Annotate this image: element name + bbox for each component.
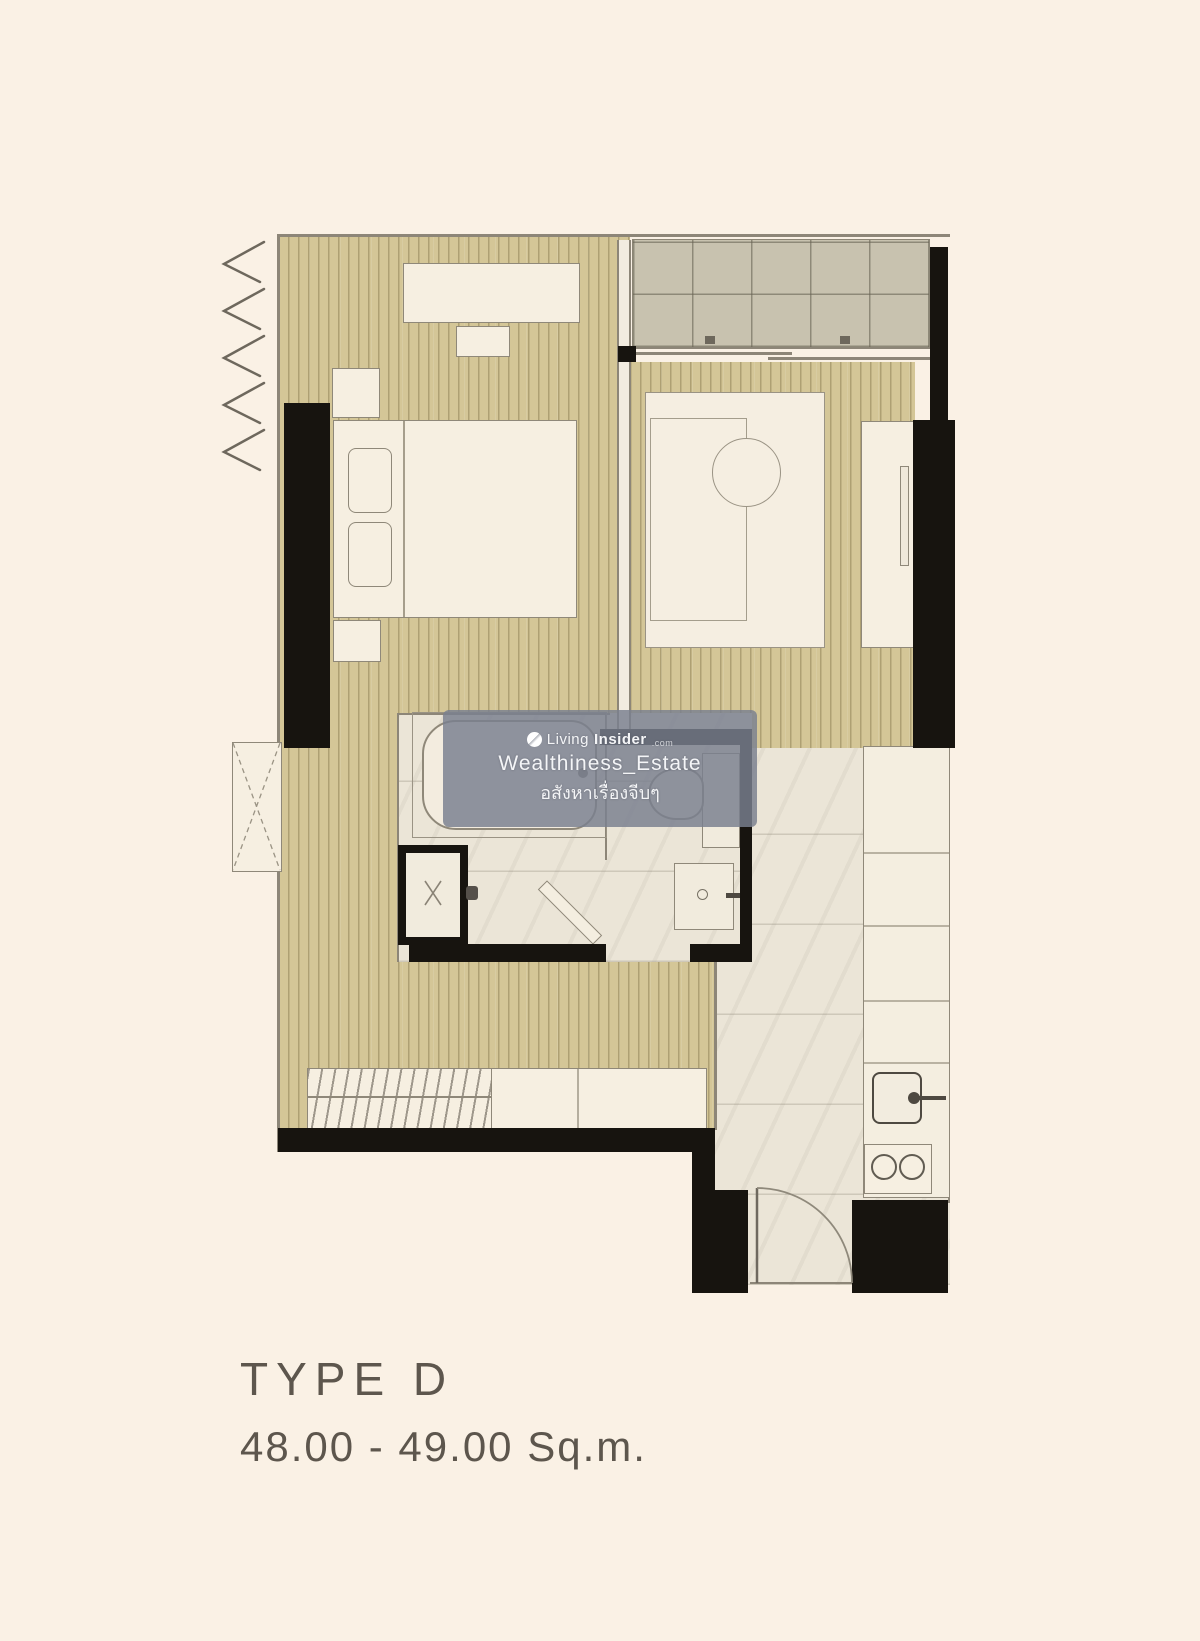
balcony-roller-icon [705,336,715,344]
bed-bench [333,620,381,662]
counter-divider [864,1062,949,1064]
ac-unit-cross-icon [233,743,280,870]
bed-sheet-line [403,421,405,617]
low-shelf-divider [577,1069,579,1129]
stove [864,1144,932,1194]
wall-bathroom-bottom-left [409,944,606,962]
caption: TYPE D 48.00 - 49.00 Sq.m. [240,1352,647,1471]
ac-unit-box [232,742,282,872]
pillow [348,448,392,513]
floor-plan-page: Living Insider .com Wealthiness_Estate อ… [0,0,1200,1641]
stove-burner-icon [899,1154,925,1180]
watermark-brand: Living Insider .com [527,731,673,748]
window-louver-icon [212,240,292,490]
desk [403,263,580,323]
balcony-sill-line [632,347,930,349]
wall-entry-right-stub [852,1200,948,1293]
top-wall-line [277,234,950,237]
watermark-account: Wealthiness_Estate [498,752,701,776]
counter-divider [864,925,949,927]
partition-wall [617,240,631,745]
living-insider-logo-icon [527,732,542,747]
coffee-table [712,438,781,507]
pillow [348,522,392,587]
shower-stall [398,845,468,945]
wall-bathroom-bottom-right [690,944,752,962]
tv-console-hatched [307,1068,493,1130]
balcony-floor [632,239,930,348]
low-shelf [491,1068,707,1130]
shower-valve-icon [466,886,478,900]
wall-living-bottom [278,1128,715,1152]
nightstand [332,368,380,418]
entry-door-swing [740,1180,860,1290]
balcony-roller-icon [840,336,850,344]
sink-faucet-arm [918,1096,946,1100]
counter-divider [864,852,949,854]
balcony-sliding-door [768,357,930,360]
watermark-thai-line: อสังหาเรื่องจีบๆ [540,778,660,807]
balcony-sliding-door [632,352,792,355]
brand-tld: .com [652,738,674,748]
counter-divider [864,1000,949,1002]
basin-tap-icon [697,889,708,900]
desk-stool [456,326,510,357]
wall-partition-post [618,346,636,362]
unit-type-title: TYPE D [240,1352,647,1406]
brand-bold: Insider [594,731,647,748]
watermark: Living Insider .com Wealthiness_Estate อ… [443,710,757,827]
shower-x-icon [423,879,443,907]
wall-right-column [913,420,955,748]
wood-marble-divider [714,962,717,1130]
tv-console-mid-line [308,1096,492,1098]
unit-area-text: 48.00 - 49.00 Sq.m. [240,1423,647,1471]
wall-right-upper [930,247,948,420]
stove-burner-icon [871,1154,897,1180]
tv [900,466,909,566]
kitchen-counter [863,746,950,1198]
brand-light: Living [547,731,589,748]
